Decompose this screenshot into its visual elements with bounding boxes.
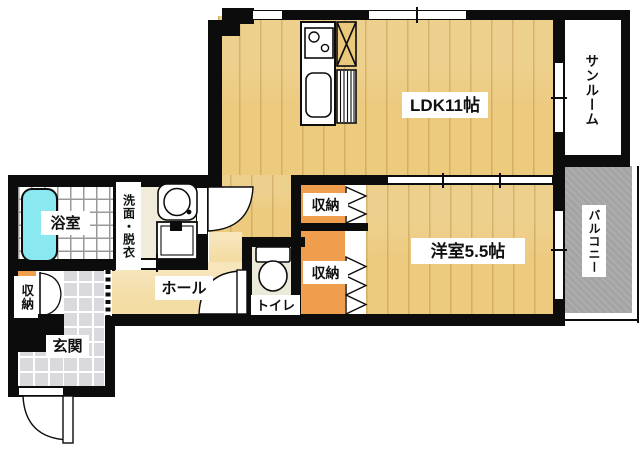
folding-door-lower-icon [346, 257, 366, 314]
room-label-closet-lower: 収納 [303, 261, 348, 284]
folding-door-upper-icon [346, 187, 366, 223]
room-label-entrance: 玄関 [46, 335, 89, 358]
room-label-sunroom: サンルーム [578, 44, 603, 136]
vanity-sink-icon [158, 184, 197, 220]
room-label-washroom: 洗面・脱衣 [116, 182, 141, 270]
closet-double-door-icon [40, 272, 61, 317]
window-tick-marks [157, 7, 567, 272]
kitchen-counter [301, 22, 335, 125]
room-label-ldk: LDK11帖 [402, 92, 488, 118]
washing-machine-icon [157, 221, 197, 259]
counter-stripes-icon [337, 70, 356, 123]
kitchen-sink-icon [306, 73, 331, 117]
door-swing-ldk-icon [208, 187, 253, 231]
stove-icon [305, 28, 333, 58]
room-label-toilet: トイレ [251, 295, 300, 315]
room-label-hall: ホール [155, 276, 213, 300]
floor-plan: LDK11帖 洋室5.5帖 サンルーム バルコニー 浴室 洗面・脱衣 ホール ト… [0, 0, 640, 455]
refrigerator-space-icon [337, 22, 356, 66]
door-swing-entrance-icon [23, 396, 73, 443]
room-label-closet-entrance: 収納 [14, 276, 38, 318]
room-label-bathroom: 浴室 [41, 211, 90, 235]
room-label-closet-upper: 収納 [303, 193, 348, 216]
room-label-western: 洋室5.5帖 [411, 238, 525, 264]
room-label-balcony: バルコニー [582, 205, 606, 277]
toilet-bowl-icon [256, 247, 290, 291]
stove-burner-icon [321, 44, 328, 51]
stove-burner-icon [309, 32, 319, 42]
fixtures-layer [0, 0, 640, 455]
